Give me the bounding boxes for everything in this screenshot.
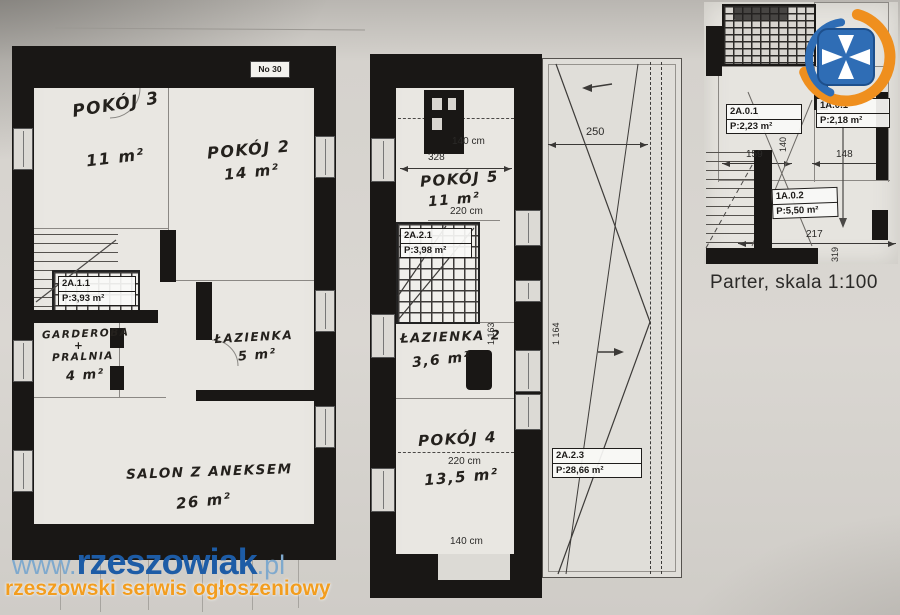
parter-pillar [872,210,888,240]
partition-wall [34,310,158,323]
dim-217: 217 [806,229,823,240]
partition-wall [110,366,124,390]
door-gap [515,210,541,246]
plan-middle-wall-right [514,54,542,574]
dim-140cm-top: 140 cm [452,136,485,147]
dim-140cm-bottom: 140 cm [450,536,483,547]
chimney-flue [432,118,442,130]
area-label-id: 2A.2.3 [553,449,641,463]
window [371,314,395,358]
dim-159: 159 [746,149,763,160]
area-label-value: P:5,50 m² [773,202,837,218]
parter-stair-wall [754,150,772,252]
partition-wall [196,390,314,401]
room-label-garderoba-3: PRALNIA [52,350,114,364]
area-label-2A11: 2A.1.1 P:3,93 m² [58,276,136,306]
window [13,340,33,382]
chimney-flue [432,98,442,110]
watermark-tagline: rzeszowski serwis ogłoszeniowy [5,577,331,601]
room-area-garderoba: 4 m² [66,367,106,385]
window [13,450,33,492]
plan-number-stamp: No 30 [250,61,290,78]
door-gap [515,350,541,392]
window [371,138,395,182]
watermark-tld: .pl [257,550,286,580]
door-gap [515,394,541,430]
watermark-brand: rzeszowiak [77,541,257,582]
parter-staircase [706,152,756,250]
area-label-2A23: 2A.2.3 P:28,66 m² [552,448,642,478]
area-label-1A02: 1A.0.2 P:5,50 m² [771,187,838,219]
window [315,290,335,332]
area-label-2A21: 2A.2.1 P:3,98 m² [400,228,472,258]
dim-140-vertical: 140 [778,137,788,152]
roof-dashed-line [398,452,514,453]
partition-line [34,228,168,229]
area-label-value: P:2,18 m² [817,113,889,127]
terrace-dashed-edge [650,62,651,574]
dim-148: 148 [836,149,853,160]
area-label-id: 2A.2.1 [401,229,471,243]
dim-tick-line [428,220,500,221]
area-label-value: P:3,98 m² [401,243,471,257]
dim-319-vertical: 319 [830,247,840,262]
window [315,406,335,448]
parter-stair-wall [706,248,818,264]
plan-caption: Parter, skala 1:100 [710,272,878,294]
terrace-dashed-edge [661,62,662,574]
floorplan-scan: No 30 2A.1.1 P:3,93 m² POKÓJ 3 11 m² POK… [0,0,900,615]
area-label-value: P:2,23 m² [727,119,801,133]
dim-250: 250 [586,126,604,138]
partition-line [396,398,514,399]
partition-wall [160,230,176,282]
rzeszow-logo [788,6,900,112]
partition-line [814,2,888,3]
dim-220cm-pokoj4: 220 cm [448,456,481,467]
dim-1164-vertical: 1 164 [551,322,561,345]
window [13,128,33,170]
dim-1163-vertical: 1 163 [486,322,496,345]
partition-line [168,88,169,230]
area-label-value: P:3,93 m² [59,291,135,305]
dim-line-250 [548,144,648,145]
area-label-id: 2A.1.1 [59,277,135,291]
parter-wall-stub [706,26,722,76]
area-label-value: P:28,66 m² [553,463,641,477]
door-gap [515,280,541,302]
watermark-www: www. [12,550,77,580]
illegible-text-smudge [734,7,788,20]
chimney-flue [448,98,456,110]
partition-wall [196,282,212,340]
window [315,136,335,178]
terrace-inner-line [548,64,676,572]
partition-line [34,397,166,398]
window [371,468,395,512]
wall-notch [438,554,510,580]
dim-220cm-pokoj5: 220 cm [450,206,483,217]
partition-line [168,280,314,281]
dim-328: 328 [428,152,445,163]
